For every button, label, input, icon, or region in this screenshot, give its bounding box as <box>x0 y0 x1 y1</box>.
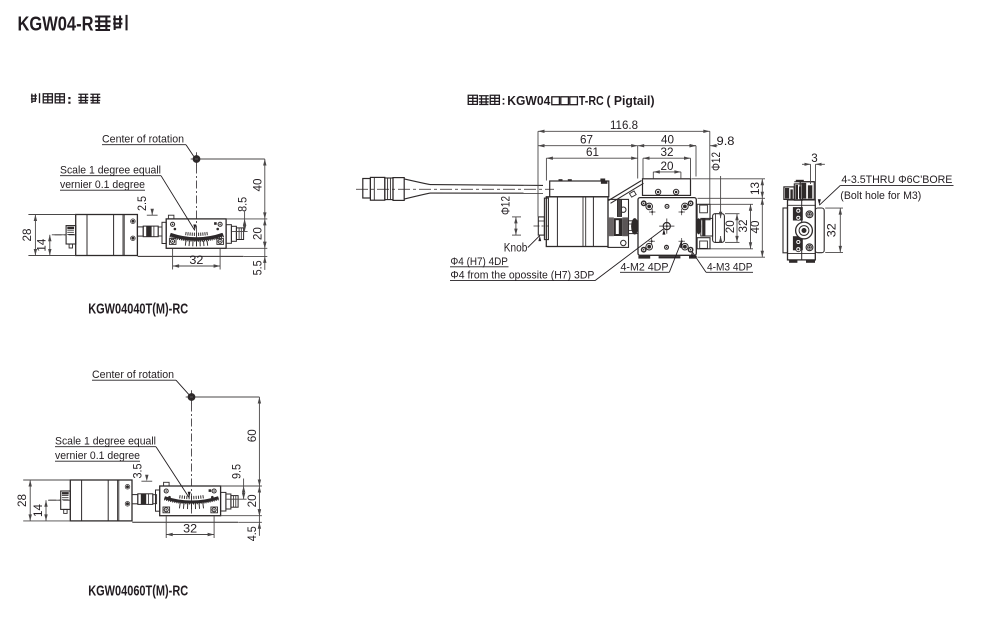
svg-text:8.5: 8.5 <box>236 197 249 212</box>
svg-text:60: 60 <box>246 429 259 442</box>
svg-text:20: 20 <box>251 227 264 240</box>
svg-text:KGW04-R: KGW04-R <box>18 13 94 36</box>
svg-text:( Pigtail): ( Pigtail) <box>607 94 655 108</box>
svg-text:32: 32 <box>183 522 197 535</box>
svg-text:67: 67 <box>580 134 593 147</box>
svg-text:Φ12: Φ12 <box>710 152 723 171</box>
svg-text:Φ4 (H7) 4DP: Φ4 (H7) 4DP <box>450 256 508 268</box>
svg-text:28: 28 <box>21 229 34 242</box>
svg-text:4-M3 4DP: 4-M3 4DP <box>707 261 753 273</box>
svg-text:13: 13 <box>749 182 762 195</box>
svg-text:61: 61 <box>586 146 599 159</box>
svg-text:KGW04: KGW04 <box>507 94 550 108</box>
svg-text:32: 32 <box>826 223 839 237</box>
svg-text:4-M2 4DP: 4-M2 4DP <box>621 261 669 273</box>
svg-text:Knob: Knob <box>504 243 528 255</box>
svg-text:20: 20 <box>724 220 737 233</box>
svg-text:32: 32 <box>737 220 750 233</box>
svg-text:40: 40 <box>661 134 674 147</box>
svg-text:Center of rotation: Center of rotation <box>102 134 184 146</box>
svg-text:32: 32 <box>661 146 674 159</box>
svg-text:116.8: 116.8 <box>610 119 638 132</box>
svg-text:32: 32 <box>189 254 203 267</box>
svg-text:T-RC: T-RC <box>579 94 604 108</box>
svg-text:3.5: 3.5 <box>132 464 145 479</box>
svg-text:40: 40 <box>251 179 264 192</box>
svg-text:Scale 1 degree equall: Scale 1 degree equall <box>60 165 161 177</box>
svg-text:Scale 1 degree equall: Scale 1 degree equall <box>55 436 156 448</box>
svg-text:2.5: 2.5 <box>136 196 149 211</box>
svg-text:Φ4 from the opossite (H7) 3DP: Φ4 from the opossite (H7) 3DP <box>450 270 594 282</box>
svg-text:KGW04040T(M)-RC: KGW04040T(M)-RC <box>88 301 188 318</box>
svg-text:vernier 0.1 degree: vernier 0.1 degree <box>60 179 145 191</box>
svg-text:5.5: 5.5 <box>251 260 264 275</box>
svg-text:4-3.5THRU Φ6C'BORE: 4-3.5THRU Φ6C'BORE <box>841 174 952 186</box>
svg-text:9.8: 9.8 <box>717 135 735 148</box>
svg-text:4.5: 4.5 <box>246 526 259 541</box>
svg-text:20: 20 <box>246 494 259 507</box>
svg-text:Φ12: Φ12 <box>500 196 513 215</box>
svg-text:9.5: 9.5 <box>231 464 244 479</box>
svg-text:3: 3 <box>811 152 817 165</box>
svg-text:Center of rotation: Center of rotation <box>92 369 174 381</box>
svg-text:KGW04060T(M)-RC: KGW04060T(M)-RC <box>88 583 188 600</box>
svg-text:20: 20 <box>661 160 674 173</box>
svg-text:14: 14 <box>36 238 49 252</box>
svg-text:28: 28 <box>16 494 29 507</box>
svg-text::: : <box>502 94 506 108</box>
svg-text:(Bolt hole for M3): (Bolt hole for M3) <box>840 190 921 202</box>
svg-text:vernier 0.1 degree: vernier 0.1 degree <box>55 450 140 462</box>
svg-text:14: 14 <box>32 504 45 518</box>
